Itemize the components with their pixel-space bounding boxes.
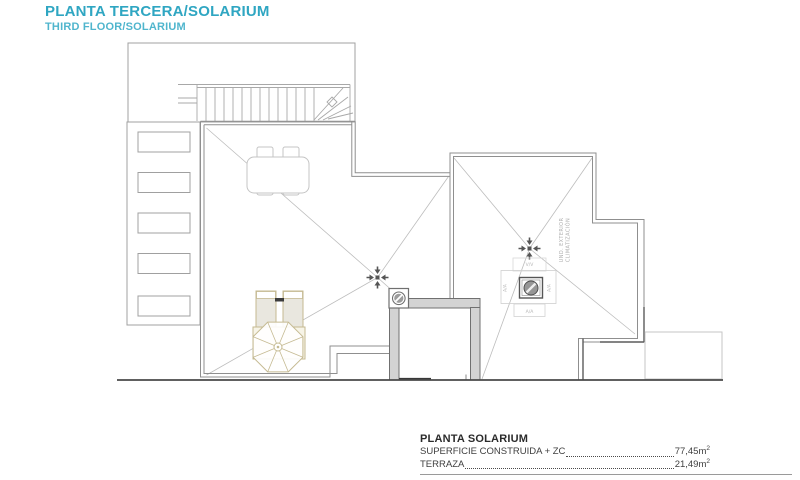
stair-treads [206,88,314,121]
hip-lines [454,158,635,379]
legend-value-text: 21,49m [675,459,707,470]
shaft-wall-top [408,299,480,309]
staircase [178,85,353,122]
shaft-wall-left [390,308,400,381]
aa-label-bottom: A/A [526,309,535,315]
stair-shaft [389,289,480,381]
drain-cross-left [367,267,389,289]
legend-row: TERRAZA 21,49m2 [420,459,710,472]
ac-unit: V/V A/A A/A A/A [501,258,556,317]
louver-panel [127,122,200,325]
stair-winder-treads [314,88,353,120]
side-table [275,298,284,302]
drain-cross-right [519,238,541,260]
parapet-step [352,121,450,176]
aa-label-right: A/A [547,283,553,292]
floor-plan-drawing: V/V A/A A/A A/A UND. EXTERIOR CLIMATIZAC… [0,0,800,480]
leader-dots [566,456,673,457]
louver-slat [138,173,190,193]
parasol-pole-dot [277,346,280,349]
upper-roof [128,43,355,122]
drain-center [528,247,532,251]
lounger-pillow [257,292,276,299]
dining-table [247,157,309,193]
legend-title: PLANTA SOLARIUM [420,433,792,445]
exterior-unit-label: UND. EXTERIOR CLIMATIZACIÓN [559,218,572,263]
legend-rule [420,474,792,475]
vv-label: V/V [526,262,535,268]
legend-value-sup: 2 [706,457,710,464]
hip-lines [207,128,449,375]
parasol [253,322,303,372]
screenshot-page: PLANTA TERCERA/SOLARIUM THIRD FLOOR/SOLA… [0,0,800,480]
aa-label-left: A/A [503,283,509,292]
roof-hip-lines-right [454,158,635,379]
legend-value-text: 77,45m [675,446,707,457]
upper-roof-outline [128,43,355,122]
legend-label: TERRAZA [420,459,464,472]
lounge-area [253,291,305,372]
lounger-pillow [284,292,303,299]
stair-landing [178,85,197,121]
stair-direction-marker [327,97,337,107]
unit-label-line2: CLIMATIZACIÓN [565,218,572,262]
louver-slat [138,254,190,274]
lower-roof [645,332,722,379]
legend-label: SUPERFICIE CONSTRUIDA + ZC [420,446,565,459]
terrace-parapet [201,121,451,377]
area-legend: PLANTA SOLARIUM SUPERFICIE CONSTRUIDA + … [420,433,792,475]
shaft-wall-right [471,308,481,381]
roof-hip-lines-left [207,128,449,375]
unit-label-line1: UND. EXTERIOR [559,218,565,263]
legend-value: 21,49m2 [675,459,710,472]
louver-slat [138,132,190,152]
legend-value-sup: 2 [706,445,710,452]
right-roof-accent [583,307,644,380]
legend-value: 77,45m2 [675,446,710,459]
lower-roof-outline [645,332,722,379]
louver-slat [138,296,190,316]
leader-dots [465,468,673,469]
louver-slat [138,213,190,233]
legend-row: SUPERFICIE CONSTRUIDA + ZC 77,45m2 [420,446,710,459]
dining-set [247,147,309,195]
drain-center [376,276,380,280]
